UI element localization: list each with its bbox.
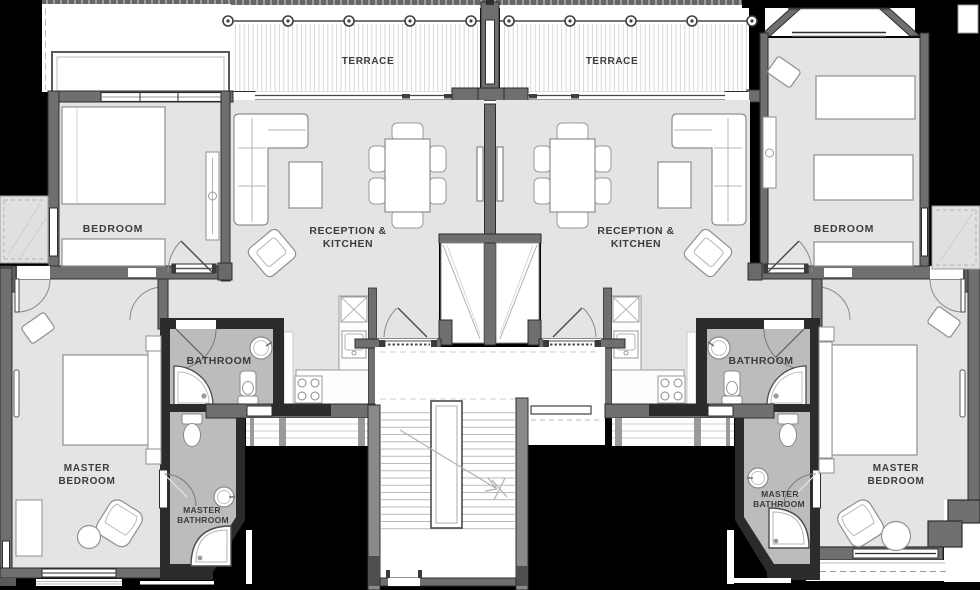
svg-text:TERRACE: TERRACE: [342, 56, 395, 67]
svg-text:TERRACE: TERRACE: [586, 56, 639, 67]
svg-text:RECEPTION &: RECEPTION &: [597, 225, 674, 237]
svg-text:BATHROOM: BATHROOM: [177, 515, 229, 525]
svg-text:BEDROOM: BEDROOM: [58, 476, 115, 487]
svg-text:BATHROOM: BATHROOM: [753, 499, 805, 509]
svg-text:BATHROOM: BATHROOM: [186, 355, 251, 367]
svg-text:RECEPTION &: RECEPTION &: [309, 225, 386, 237]
svg-text:KITCHEN: KITCHEN: [323, 238, 373, 250]
svg-text:MASTER: MASTER: [761, 489, 799, 499]
svg-text:MASTER: MASTER: [64, 463, 110, 474]
svg-text:KITCHEN: KITCHEN: [611, 238, 661, 250]
svg-text:MASTER: MASTER: [873, 463, 920, 474]
svg-text:BEDROOM: BEDROOM: [814, 223, 874, 235]
svg-text:BEDROOM: BEDROOM: [83, 223, 143, 235]
svg-text:BEDROOM: BEDROOM: [867, 476, 924, 487]
svg-text:MASTER: MASTER: [183, 505, 221, 515]
svg-text:BATHROOM: BATHROOM: [728, 355, 793, 367]
